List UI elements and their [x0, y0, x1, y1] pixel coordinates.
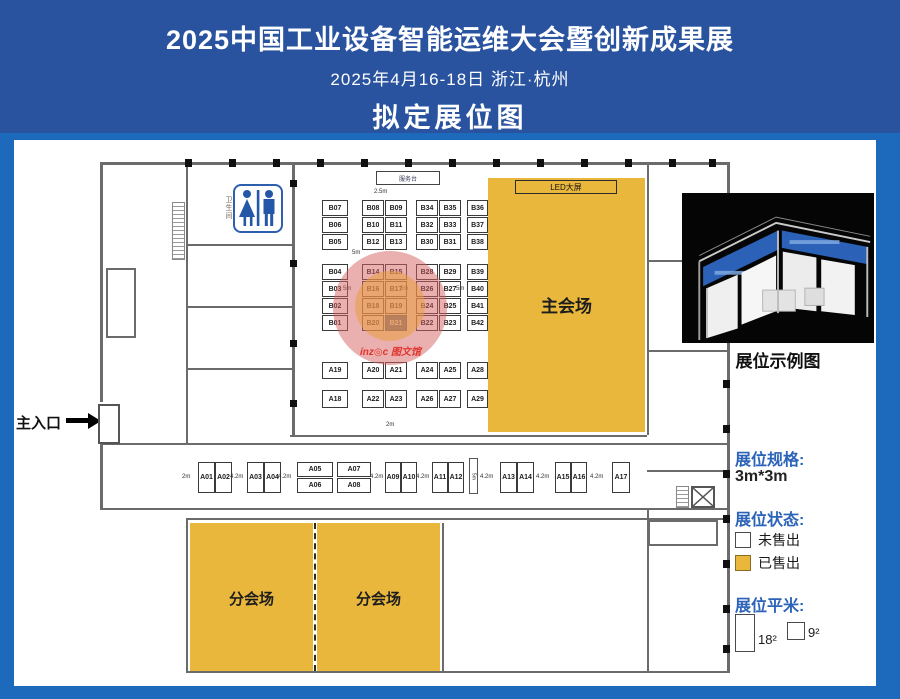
available-swatch: [735, 532, 751, 548]
column-mark: [537, 159, 544, 167]
booth-A03: A03: [247, 462, 264, 493]
elevator-box: [691, 486, 715, 508]
stairs-left: [172, 202, 185, 260]
sub-hall-left-label: 分会场: [190, 588, 313, 609]
booth-B08: B08: [362, 200, 384, 216]
wall: [100, 162, 103, 402]
restroom-sign: [233, 184, 283, 238]
column-mark: [405, 159, 412, 167]
legend-spec-value: 3m*3m: [735, 468, 787, 486]
entrance-arrow-line: [66, 418, 90, 423]
booth-example-image: [682, 193, 874, 343]
aisle-dim-label: 4.2m: [370, 474, 383, 480]
booth-B42: B42: [467, 315, 488, 331]
booth-A14: A14: [517, 462, 534, 493]
wall: [647, 470, 727, 472]
restroom-label: 卫生间: [223, 196, 233, 220]
booth-A17: A17: [612, 462, 630, 493]
booth-3d-render: [682, 193, 874, 343]
booth-B05: B05: [322, 234, 348, 250]
column-mark: [290, 400, 297, 407]
small-room-left: [106, 268, 136, 338]
led-screen-label: LED大屏: [550, 182, 582, 193]
booth-A09: A09: [385, 462, 401, 493]
booth-A22: A22: [362, 390, 384, 408]
event-title: 2025中国工业设备智能运维大会暨创新成果展: [0, 0, 900, 57]
aisle-dim-label: 2m: [386, 422, 394, 428]
booth-A27: A27: [439, 390, 461, 408]
booth-B11: B11: [385, 217, 407, 233]
wall: [292, 162, 295, 437]
booth-B37: B37: [467, 217, 488, 233]
booth-B32: B32: [416, 217, 438, 233]
booth-A23: A23: [385, 390, 407, 408]
legend-status-title: 展位状态:: [735, 506, 804, 530]
booth-A19: A19: [322, 362, 348, 379]
column-mark: [290, 260, 297, 267]
event-date-location: 2025年4月16-18日 浙江·杭州: [0, 65, 900, 90]
entrance-vestibule: [98, 404, 120, 444]
column-mark: [493, 159, 500, 167]
column-mark: [723, 560, 730, 568]
column-mark: [581, 159, 588, 167]
column-mark: [290, 340, 297, 347]
watermark-logo: ínz◎c 图文馆: [360, 343, 421, 358]
booth-A11: A11: [432, 462, 448, 493]
elevator-x-icon: [693, 488, 713, 506]
main-entrance-label: 主入口: [16, 412, 61, 433]
booth-A18: A18: [322, 390, 348, 408]
sold-label: 已售出: [758, 553, 800, 573]
sub-hall-right-label: 分会场: [317, 588, 440, 609]
booth-B30: B30: [416, 234, 438, 250]
size-18-label: 18²: [758, 632, 777, 647]
legend-spec-title: 展位规格:: [735, 446, 804, 470]
led-screen-box: LED大屏: [515, 180, 617, 194]
available-label: 未售出: [758, 530, 800, 550]
booth-B10: B10: [362, 217, 384, 233]
aisle-dim-label: 2m: [182, 474, 190, 480]
booth-B13: B13: [385, 234, 407, 250]
aisle-dim-label: 4.2m: [278, 474, 291, 480]
booth-A16: A16: [571, 462, 587, 493]
column-mark: [669, 159, 676, 167]
column-mark: [185, 159, 192, 167]
booth-B41: B41: [467, 298, 488, 314]
booth-A08: A08: [337, 478, 371, 493]
column-mark: [361, 159, 368, 167]
booth-B39: B39: [467, 264, 488, 280]
booth-A10: A10: [401, 462, 417, 493]
highlight-circle-inner: [355, 271, 425, 341]
booth-A12: A12: [448, 462, 464, 493]
small-room-right: [648, 520, 718, 546]
column-mark: [625, 159, 632, 167]
wall: [186, 162, 188, 443]
main-hall-label: 主会场: [488, 292, 645, 317]
booth-A20: A20: [362, 362, 384, 379]
service-desk-label: 服务台: [399, 174, 417, 183]
legend-status-sold: 已售出: [735, 553, 800, 573]
wall: [290, 435, 647, 437]
wall: [186, 518, 188, 673]
size-9-label: 9²: [808, 625, 820, 640]
aisle-dim-label: 5m: [352, 250, 360, 256]
column-mark: [709, 159, 716, 167]
column-mark: [723, 605, 730, 613]
wall: [188, 306, 292, 308]
booth-A28: A28: [467, 362, 488, 379]
sub-hall-divider: [314, 523, 316, 671]
wall: [100, 162, 730, 165]
legend-status-available: 未售出: [735, 530, 800, 550]
floorplan-panel: LED大屏 主会场 分会场 分会场 卫生间 服务台: [14, 140, 876, 686]
restroom-icon: [233, 184, 283, 233]
booth-B07: B07: [322, 200, 348, 216]
booth-B31: B31: [439, 234, 461, 250]
stairs-right: [676, 486, 689, 508]
service-desk-box: 服务台: [376, 171, 440, 185]
booth-A25: A25: [439, 362, 461, 379]
column-mark: [317, 159, 324, 167]
booth-A06: A06: [297, 478, 333, 493]
column-mark: [723, 645, 730, 653]
column-mark: [723, 425, 730, 433]
booth-A01: A01: [198, 462, 215, 493]
column-mark: [449, 159, 456, 167]
booth-B33: B33: [439, 217, 461, 233]
page-title: 拟定展位图: [0, 96, 900, 135]
booth-A07: A07: [337, 462, 371, 477]
booth-B09: B09: [385, 200, 407, 216]
wall: [100, 508, 730, 510]
booth-A15: A15: [555, 462, 571, 493]
booth-B38: B38: [467, 234, 488, 250]
column-mark: [723, 515, 730, 523]
column-mark: [723, 380, 730, 388]
sold-swatch: [735, 555, 751, 571]
column-mark: [273, 159, 280, 167]
wall: [188, 244, 292, 246]
wall: [100, 443, 730, 445]
wall: [188, 368, 292, 370]
aisle-dim-label: 5m: [456, 286, 464, 292]
column-mark: [229, 159, 236, 167]
booth-A26: A26: [416, 390, 438, 408]
wall: [100, 440, 103, 510]
column-mark: [723, 470, 730, 478]
booth-B40: B40: [467, 281, 488, 297]
booth-A13: A13: [500, 462, 517, 493]
aisle-dim-label: 4.2m: [230, 474, 243, 480]
booth-B29: B29: [439, 264, 461, 280]
wall: [442, 523, 444, 671]
booth-B12: B12: [362, 234, 384, 250]
booth-B35: B35: [439, 200, 461, 216]
aisle-dim-label: 4.2m: [480, 474, 493, 480]
booth-example-caption: 展位示例图: [682, 347, 874, 372]
booth-B34: B34: [416, 200, 438, 216]
aisle-dim-label: 2.5m: [374, 189, 387, 195]
aisle-dim-label: 4.2m: [416, 474, 429, 480]
size-9-swatch: [787, 622, 805, 640]
aisle-dim-label: 4.2m: [536, 474, 549, 480]
booth-A29: A29: [467, 390, 488, 408]
booth-B06: B06: [322, 217, 348, 233]
aisle-dimension-vertical: 5m: [469, 458, 478, 494]
booth-A24: A24: [416, 362, 438, 379]
column-mark: [290, 180, 297, 187]
booth-B36: B36: [467, 200, 488, 216]
wall: [647, 162, 649, 435]
size-18-swatch: [735, 614, 755, 652]
header-banner: 2025中国工业设备智能运维大会暨创新成果展 2025年4月16-18日 浙江·…: [0, 0, 900, 133]
booth-A05: A05: [297, 462, 333, 477]
aisle-dim-label: 4.2m: [590, 474, 603, 480]
legend-size-title: 展位平米:: [735, 592, 804, 616]
page: { "header": { "title": "2025中国工业设备智能运维大会…: [0, 0, 900, 699]
